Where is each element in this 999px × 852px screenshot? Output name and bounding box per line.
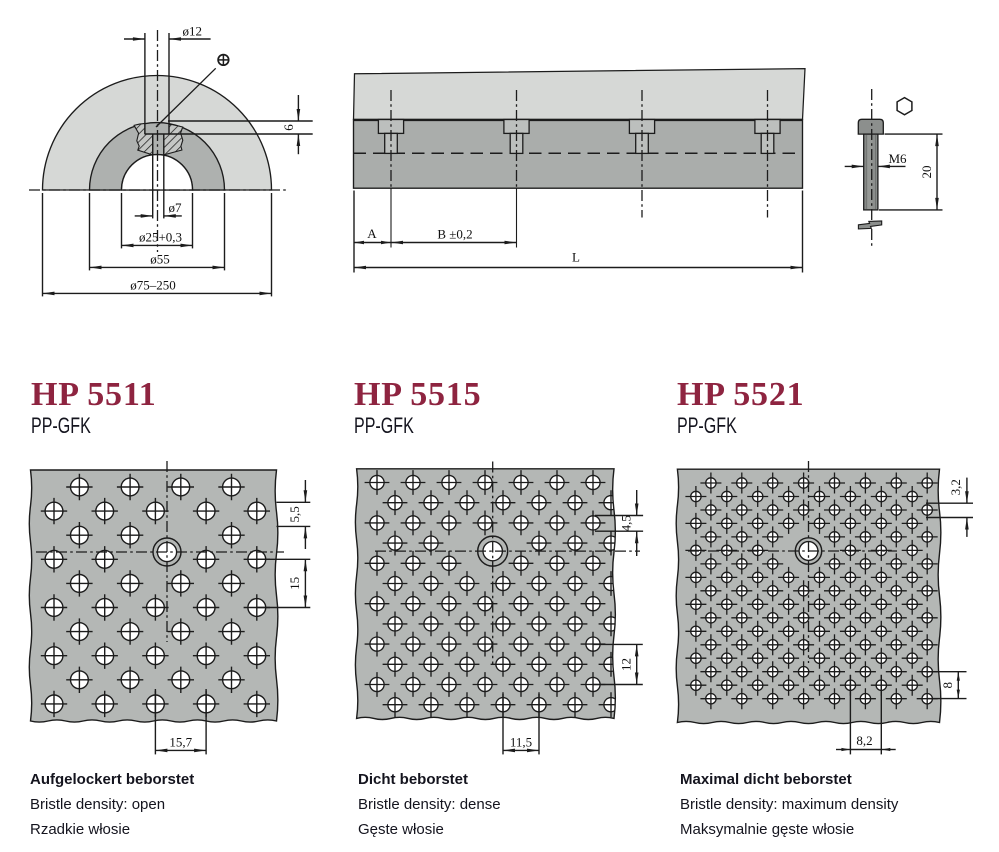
svg-text:20: 20 xyxy=(919,166,934,179)
svg-text:3,2: 3,2 xyxy=(948,479,963,495)
svg-text:11,5: 11,5 xyxy=(510,735,532,750)
svg-text:B ±0,2: B ±0,2 xyxy=(437,227,472,242)
svg-text:L: L xyxy=(572,250,580,265)
svg-text:ø7: ø7 xyxy=(169,200,183,215)
svg-text:15: 15 xyxy=(287,577,302,590)
svg-text:ø25+0,3: ø25+0,3 xyxy=(139,229,182,244)
svg-text:ø12: ø12 xyxy=(183,24,203,39)
svg-text:6: 6 xyxy=(281,124,296,131)
svg-text:8,2: 8,2 xyxy=(856,733,872,748)
svg-text:ø75–250: ø75–250 xyxy=(130,277,176,292)
svg-text:8: 8 xyxy=(940,682,955,689)
svg-text:ø55: ø55 xyxy=(150,251,170,266)
svg-text:4,5: 4,5 xyxy=(619,515,634,531)
svg-text:5,5: 5,5 xyxy=(287,506,302,522)
svg-text:A: A xyxy=(367,226,377,241)
svg-text:M6: M6 xyxy=(889,151,908,166)
svg-text:12: 12 xyxy=(619,658,634,671)
svg-text:15,7: 15,7 xyxy=(169,735,192,750)
